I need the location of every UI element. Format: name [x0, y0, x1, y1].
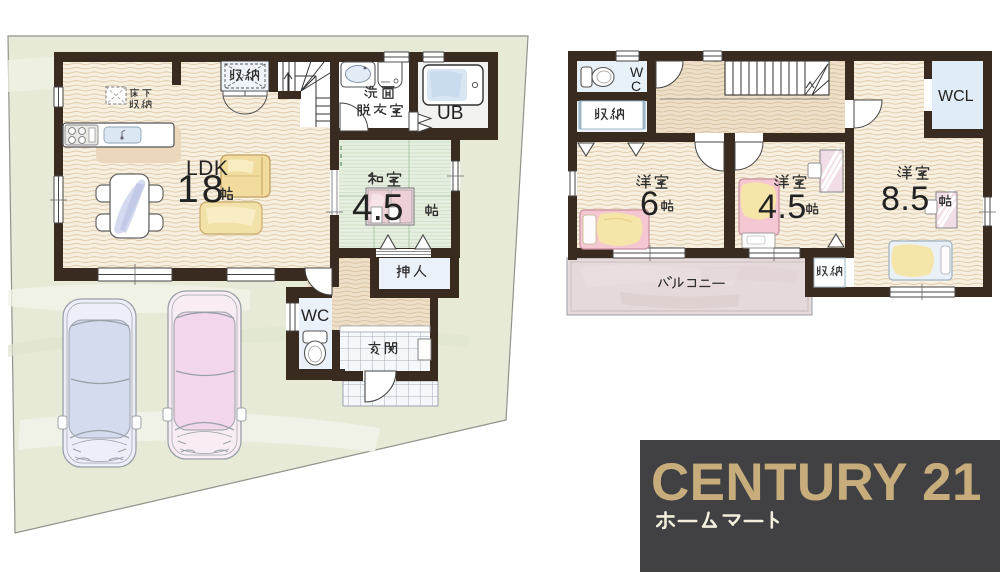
svg-text:4.5: 4.5 — [352, 187, 403, 228]
svg-text:WCL: WCL — [938, 88, 974, 105]
svg-text:WC: WC — [301, 306, 329, 325]
svg-text:CENTURY 21: CENTURY 21 — [651, 453, 982, 512]
svg-text:4.5: 4.5 — [758, 188, 807, 226]
svg-text:UB: UB — [437, 103, 463, 124]
svg-text:C: C — [631, 78, 641, 94]
svg-text:6: 6 — [640, 185, 659, 223]
svg-text:8.5: 8.5 — [881, 180, 930, 218]
svg-text:18: 18 — [177, 168, 226, 211]
